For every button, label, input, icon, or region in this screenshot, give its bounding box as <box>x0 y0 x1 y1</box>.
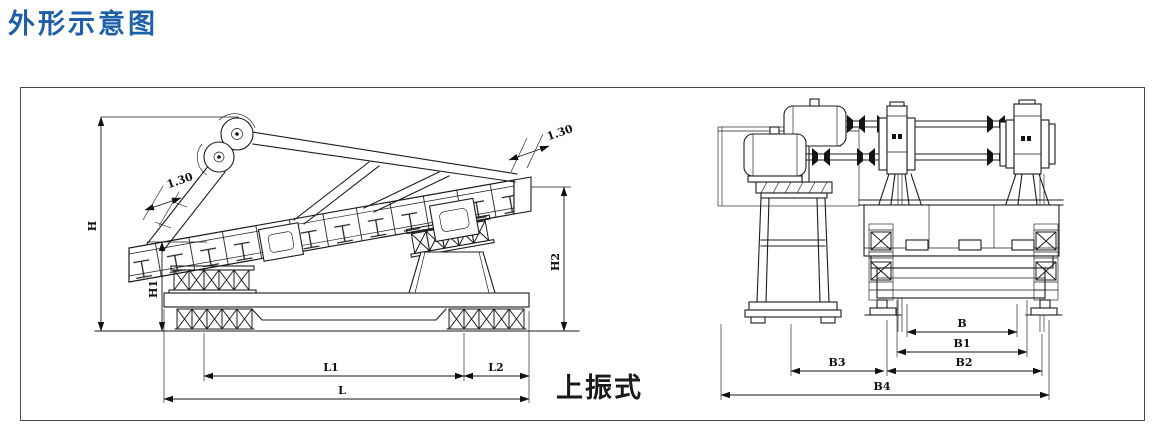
motor-front <box>744 127 806 182</box>
dim-label-b3: B3 <box>829 356 846 369</box>
dim-label-h: H <box>86 221 99 231</box>
dim-label-b1: B1 <box>954 337 971 350</box>
trough-side-box-left <box>259 223 304 261</box>
dim-label-h1: H1 <box>147 280 160 298</box>
vibrator-right <box>1000 100 1055 174</box>
end-view-machine <box>718 99 1063 332</box>
page-title: 外形示意图 <box>8 2 158 41</box>
dim-label-l1: L1 <box>323 361 338 374</box>
end-flange <box>514 177 531 214</box>
dim-label-b: B <box>957 317 966 330</box>
dim-label-l2: L2 <box>488 361 503 374</box>
end-view-drawing: B B1 B2 B3 B4 <box>701 94 1151 414</box>
vibration-type-caption: 上振式 <box>556 366 643 405</box>
base-frame <box>164 293 529 329</box>
dim-label-h2: H2 <box>549 253 562 271</box>
dim-label-flange-right: 1.30 <box>545 122 575 143</box>
dim-label-l: L <box>338 384 346 397</box>
side-view-machine <box>95 114 579 331</box>
figure-frame: H H1 H2 L1 L2 L 1.30 1.30 <box>20 87 1145 421</box>
exciter-pulleys <box>197 114 255 175</box>
dim-label-b4: B4 <box>874 380 891 393</box>
trough-side-box-right <box>430 198 480 241</box>
vibrator-left <box>879 102 915 174</box>
mounting-pads <box>865 300 1062 315</box>
dim-label-b2: B2 <box>956 356 973 369</box>
top-frame-chord <box>252 132 517 182</box>
